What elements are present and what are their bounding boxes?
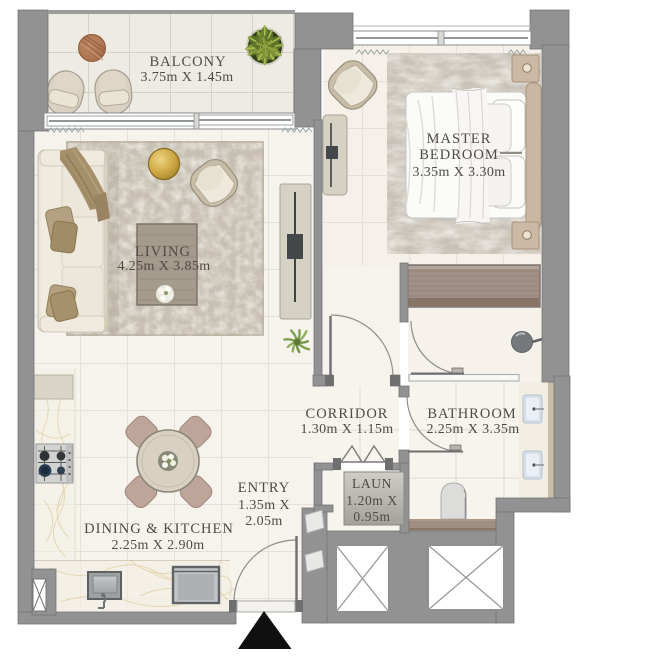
svg-text:BATHROOM: BATHROOM: [427, 406, 516, 422]
svg-text:DINING & KITCHEN: DINING & KITCHEN: [84, 521, 234, 537]
svg-text:0.95m: 0.95m: [353, 509, 390, 524]
svg-text:MASTER: MASTER: [427, 131, 492, 147]
svg-text:LAUN: LAUN: [352, 476, 392, 491]
svg-text:1.30m X 1.15m: 1.30m X 1.15m: [300, 422, 393, 437]
svg-text:ENTRY: ENTRY: [238, 480, 291, 496]
svg-text:BEDROOM: BEDROOM: [419, 147, 499, 163]
svg-text:LIVING: LIVING: [135, 244, 191, 260]
svg-text:3.35m X 3.30m: 3.35m X 3.30m: [412, 165, 505, 180]
svg-text:CORRIDOR: CORRIDOR: [306, 406, 389, 422]
svg-text:1.35m X: 1.35m X: [238, 498, 290, 513]
svg-text:1.20m X: 1.20m X: [346, 493, 397, 508]
svg-text:2.05m: 2.05m: [245, 514, 282, 529]
svg-text:BALCONY: BALCONY: [149, 54, 226, 70]
svg-text:4.25m X 3.85m: 4.25m X 3.85m: [117, 259, 210, 274]
svg-text:2.25m X 2.90m: 2.25m X 2.90m: [111, 538, 204, 553]
svg-text:2.25m X 3.35m: 2.25m X 3.35m: [426, 422, 519, 437]
svg-text:3.75m X 1.45m: 3.75m X 1.45m: [140, 70, 233, 85]
